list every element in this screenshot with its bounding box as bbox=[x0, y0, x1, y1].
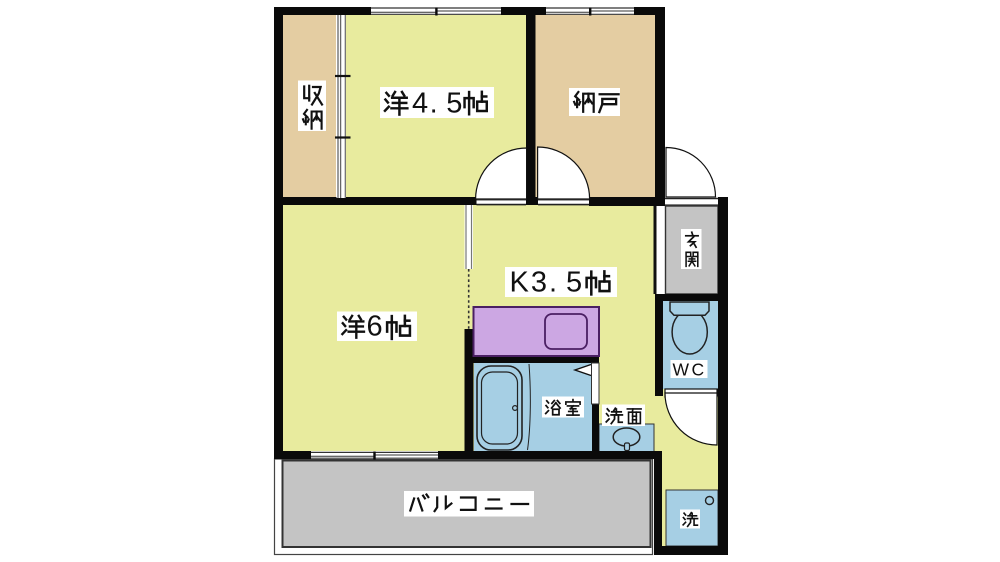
svg-text:K3.5: K3.5 bbox=[510, 267, 585, 299]
svg-text:6: 6 bbox=[367, 311, 383, 343]
svg-text:4.5: 4.5 bbox=[412, 88, 464, 120]
svg-text:WC: WC bbox=[673, 359, 707, 379]
